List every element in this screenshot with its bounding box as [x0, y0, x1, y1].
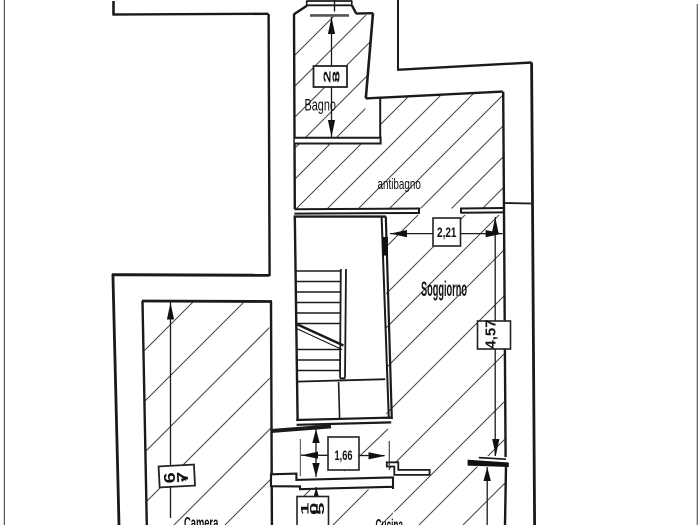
svg-text:Soggiorno: Soggiorno	[421, 276, 467, 301]
svg-text:Cucina: Cucina	[376, 515, 404, 525]
svg-text:antibagno: antibagno	[378, 176, 421, 193]
svg-text:4,57: 4,57	[483, 319, 500, 348]
svg-text:2,3: 2,3	[321, 70, 342, 83]
svg-text:6,7: 6,7	[161, 471, 192, 484]
svg-text:1,66: 1,66	[335, 447, 353, 464]
svg-text:Bagno: Bagno	[305, 96, 336, 115]
svg-text:Camera: Camera	[184, 514, 219, 525]
svg-text:2,21: 2,21	[437, 224, 457, 240]
svg-text:1,05: 1,05	[298, 502, 326, 515]
